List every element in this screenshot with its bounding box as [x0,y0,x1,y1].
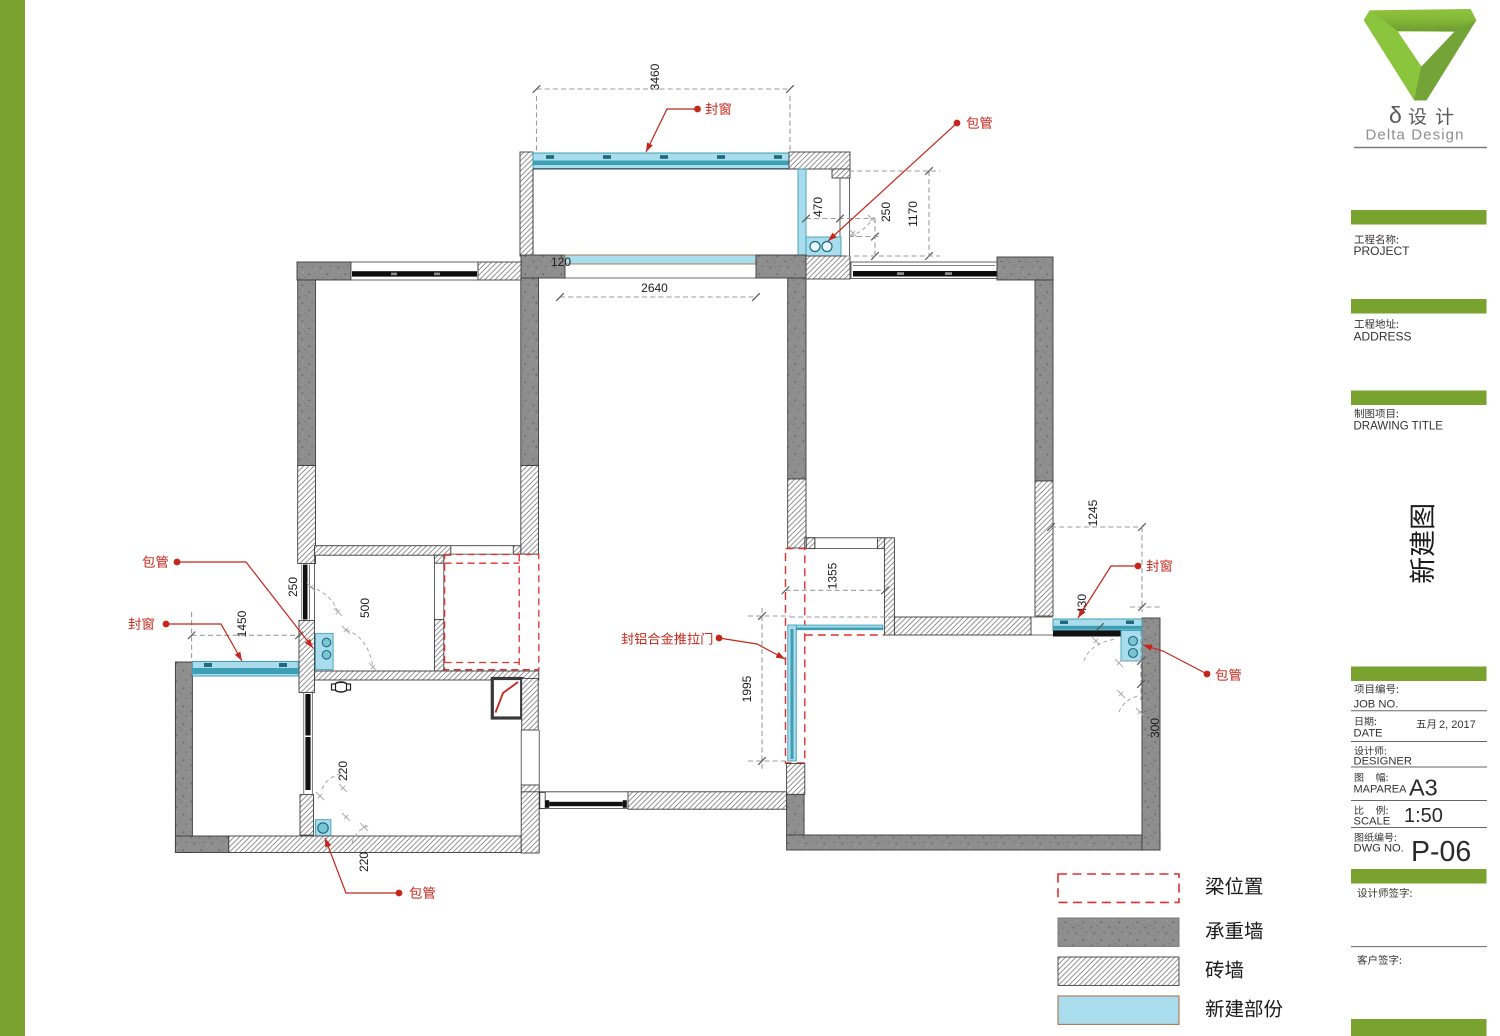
svg-text:500: 500 [358,598,372,618]
svg-text:1:50: 1:50 [1404,805,1443,827]
svg-text:P-06: P-06 [1411,836,1471,868]
svg-text:A3: A3 [1409,775,1438,801]
svg-text:120: 120 [551,255,571,269]
svg-text:DESIGNER: DESIGNER [1354,756,1412,768]
svg-text:2, 2017: 2, 2017 [1439,719,1476,731]
svg-text:DRAWING TITLE: DRAWING TITLE [1354,421,1444,433]
svg-text:SCALE: SCALE [1354,816,1391,828]
svg-text:470: 470 [811,197,825,217]
svg-text:220: 220 [336,761,350,781]
svg-text:1170: 1170 [906,201,920,227]
svg-text:MAPAREA: MAPAREA [1354,784,1408,796]
svg-text:1450: 1450 [235,610,249,637]
svg-text:DATE: DATE [1354,728,1383,740]
svg-text:250: 250 [286,577,300,597]
svg-text:1355: 1355 [826,562,840,589]
svg-text:Delta Design: Delta Design [1365,127,1464,144]
svg-text:ADDRESS: ADDRESS [1354,330,1412,344]
svg-text:DWG NO.: DWG NO. [1354,843,1404,855]
svg-text:PROJECT: PROJECT [1354,244,1411,258]
svg-text:JOB NO.: JOB NO. [1354,699,1399,711]
svg-text:δ: δ [1389,102,1402,128]
svg-text:250: 250 [879,202,893,222]
svg-text:2640: 2640 [641,281,668,295]
svg-text:3460: 3460 [648,63,662,90]
svg-text:1995: 1995 [740,675,754,702]
svg-text:1245: 1245 [1086,499,1100,526]
svg-text:220: 220 [357,852,371,872]
svg-text:300: 300 [1148,718,1162,738]
